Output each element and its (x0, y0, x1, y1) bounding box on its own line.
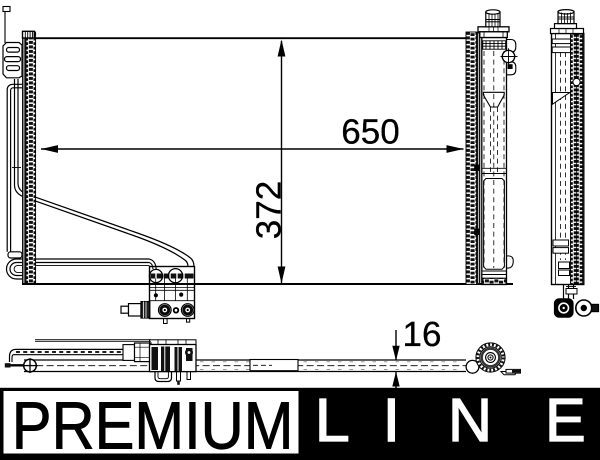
svg-text:16: 16 (403, 315, 442, 354)
svg-text:I: I (383, 386, 400, 454)
svg-text:L: L (315, 386, 350, 454)
svg-text:650: 650 (341, 113, 399, 152)
svg-text:PREMIUM: PREMIUM (12, 389, 294, 460)
svg-text:E: E (545, 386, 586, 454)
svg-text:N: N (448, 386, 492, 454)
svg-text:372: 372 (250, 181, 289, 239)
